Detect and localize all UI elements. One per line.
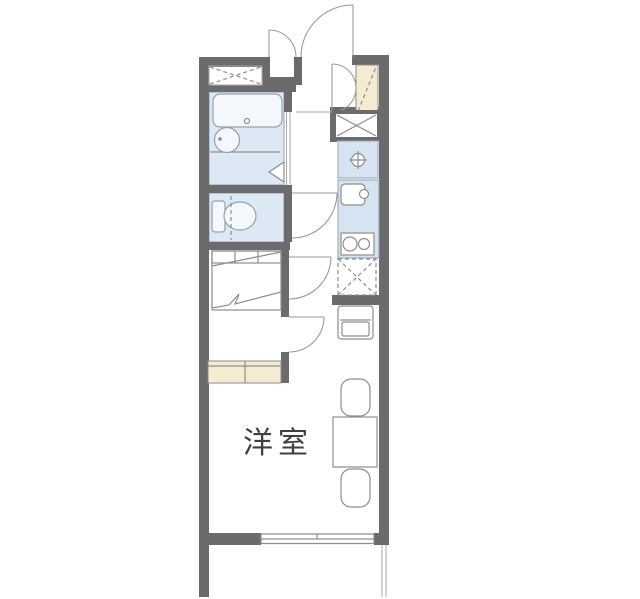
bed	[212, 251, 281, 310]
room-label-western-room: 洋室	[243, 418, 313, 462]
meter-box-door	[269, 30, 296, 57]
entry-door	[301, 5, 353, 57]
dining-chair-bottom	[341, 469, 370, 507]
counter-storage	[208, 361, 281, 383]
refrigerator-space	[338, 259, 376, 295]
bath-door-opening	[287, 112, 291, 185]
room-door	[289, 317, 324, 352]
tv-stand	[338, 306, 373, 339]
window	[261, 534, 374, 544]
washing-machine-space	[338, 141, 378, 178]
kitchen-door	[289, 257, 331, 299]
floor-plan	[0, 0, 640, 599]
bathtub	[213, 94, 282, 127]
closet-double-door	[332, 64, 356, 112]
floor-plan-canvas: 洋室	[0, 0, 640, 599]
wash-basin	[215, 128, 240, 153]
balcony-rail	[382, 545, 386, 597]
dining-chair-top	[341, 379, 370, 416]
washroom-door	[292, 193, 337, 238]
storage-shelf-x	[334, 112, 379, 139]
gas-stove	[341, 233, 374, 255]
shoe-cabinet	[356, 65, 378, 113]
dining-table	[333, 417, 377, 467]
kitchen-sink	[341, 184, 369, 205]
storage-shelf-top	[209, 66, 262, 85]
